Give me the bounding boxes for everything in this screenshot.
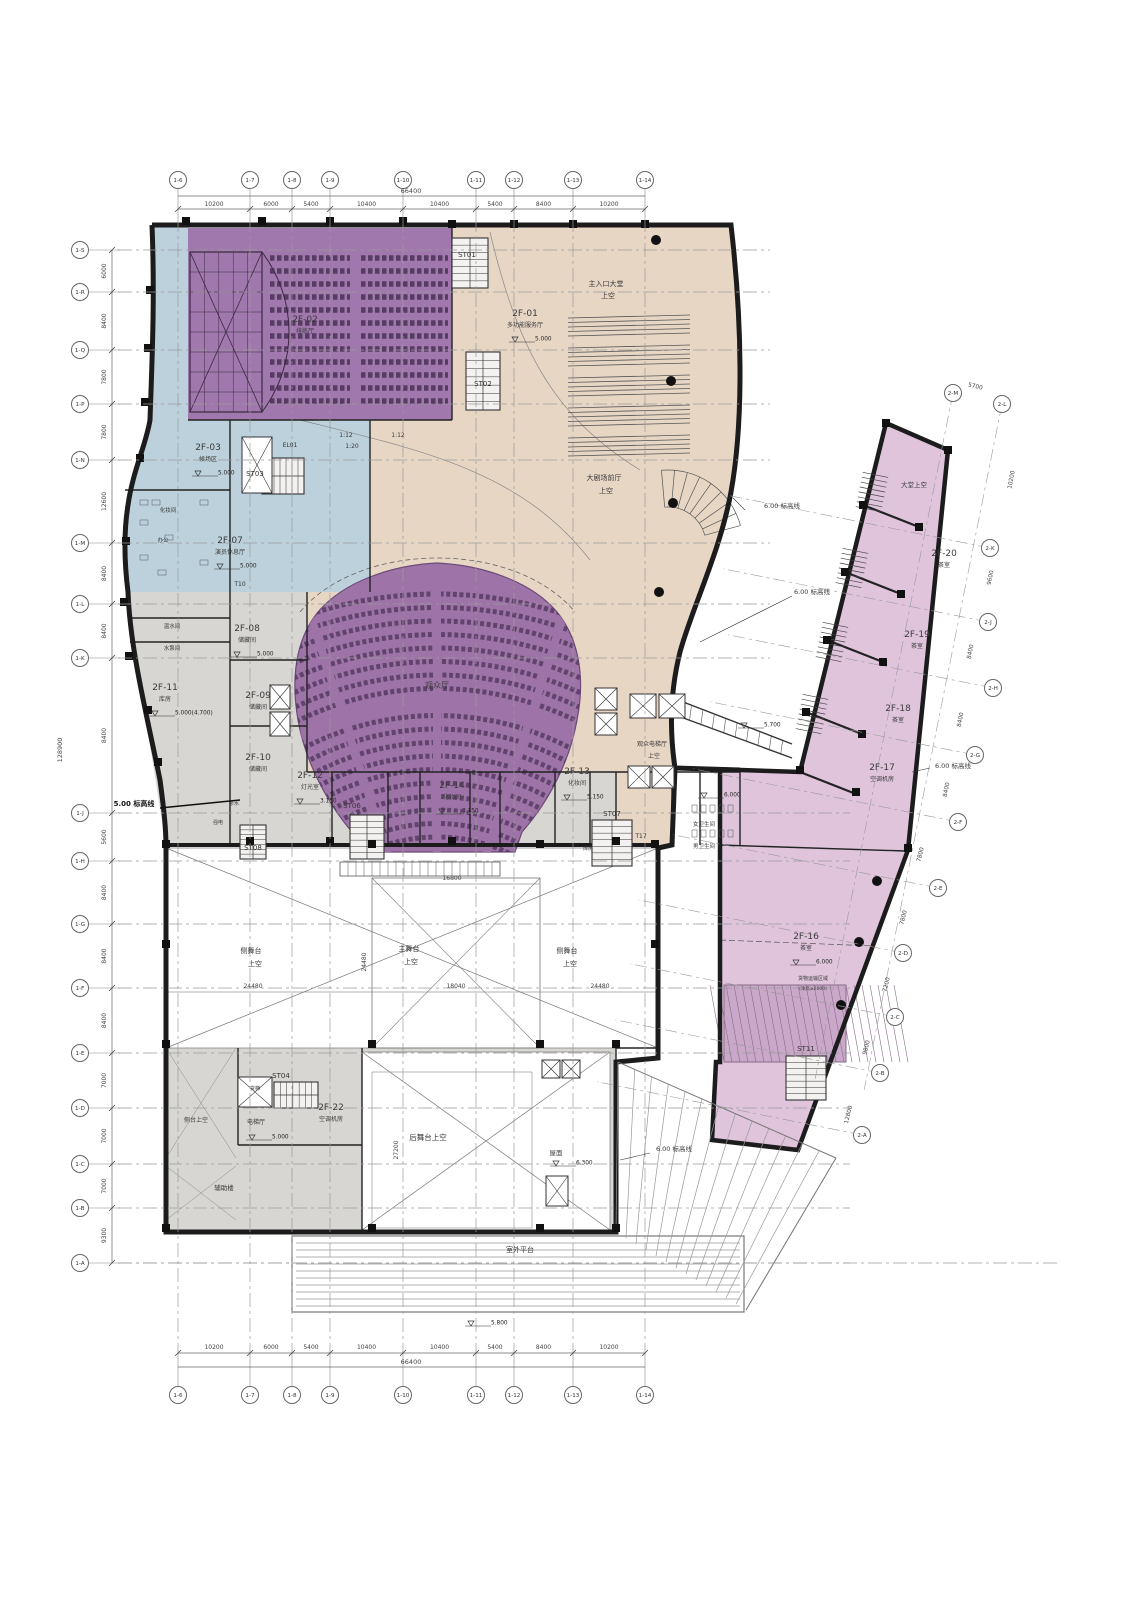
void-dimension: 18040 (446, 983, 465, 990)
grid-bubble-label: 1-8 (287, 1393, 297, 1399)
room-id: 2F-17 (869, 763, 895, 773)
column-marker (368, 1224, 376, 1232)
elevation-value: 5.000 (257, 652, 274, 658)
floor-plan-page: 1-61-71-81-91-101-111-121-131-1466400102… (0, 0, 1130, 1600)
room-name: 空调机房 (319, 1115, 343, 1123)
dim-segment-bottom: 10200 (599, 1344, 618, 1351)
dim-segment-left: 8400 (101, 728, 108, 743)
annotation-hotwater: 温水间 (164, 622, 181, 630)
stair-label: ST02 (474, 380, 492, 388)
dim-segment-top: 10400 (430, 201, 449, 208)
room-name: 储藏间 (249, 703, 267, 711)
annotation-line5: 5.00 标高线 (114, 799, 155, 808)
grid-bubble-label: 2-A (857, 1133, 866, 1139)
grid-bubble-label: 1-E (75, 1051, 85, 1057)
dim-segment-wing: 8400 (967, 644, 976, 660)
dim-segment-wing: 8400 (943, 782, 952, 798)
dim-segment-bottom: 10400 (357, 1344, 376, 1351)
column-marker (144, 344, 152, 352)
dim-segment-left: 8400 (101, 885, 108, 900)
annotation-elev-hall-2: 上空 (648, 752, 660, 760)
grid-bubble-label: 1-8 (287, 178, 297, 184)
annotation-dressing: 化妆间 (160, 506, 177, 514)
bridge-hatch (712, 715, 714, 730)
dim-segment-top: 6000 (263, 201, 278, 208)
reference-dot (836, 1000, 846, 1010)
outdoor-step (726, 1143, 802, 1298)
column-marker (823, 636, 831, 644)
grid-bubble-label: 1-J (76, 811, 84, 817)
dim-segment-left: 8400 (101, 948, 108, 963)
boh-gray-zone (166, 772, 307, 845)
reference-dot (666, 376, 676, 386)
room-name: 空调机房 (870, 775, 894, 783)
dim-segment-left: 8400 (101, 1013, 108, 1028)
elevation-value: 3.150 (462, 809, 479, 815)
elevation-value: 5.150 (587, 795, 604, 801)
outdoor-step (636, 1077, 652, 1244)
annotation-pump: 水泵间 (164, 644, 181, 652)
annotation-cargo2: (净高≥2600) (799, 985, 827, 992)
dim-segment-wing: 9600 (987, 570, 996, 586)
grid-bubble-label: 2-F (954, 820, 963, 826)
grid-bubble-label: 1-12 (508, 178, 521, 184)
grid-bubble-label: 1-9 (325, 1393, 335, 1399)
dim-segment-wing: 9800 (862, 1040, 871, 1056)
grid-bubble-label: 2-L (998, 402, 1008, 408)
toilet-fixture (710, 830, 715, 837)
elevation-value: 6.300 (576, 1161, 593, 1167)
dim-segment-bottom: 5400 (487, 1344, 502, 1351)
annotation-cargo1: 货物运输区域 (798, 975, 828, 982)
elevation-value: 6.000 (816, 960, 833, 966)
grid-bubble-label: 1-H (75, 859, 85, 865)
drawing-line (700, 596, 792, 642)
grid-bubble-label: 1-10 (397, 1393, 410, 1399)
annotation-foyer-2: 上空 (599, 486, 613, 495)
grid-bubble-label: 1-14 (639, 178, 652, 184)
column-marker (258, 217, 266, 225)
annotation-strong-elec: 强电 (213, 819, 223, 826)
void-dimension: 24480 (243, 983, 262, 990)
dim-segment-wing: 7800 (899, 910, 908, 926)
toilet-fixture (701, 830, 706, 837)
column-marker (122, 537, 130, 545)
grid-bubble-label: 1-G (75, 922, 85, 928)
dim-segment-left: 7000 (101, 1073, 108, 1088)
elevation-value: 5.700 (764, 723, 781, 729)
grid-bubble-label: 1-A (75, 1261, 84, 1267)
dim-segment-left: 7800 (101, 424, 108, 439)
grid-bubble-label: 2-D (898, 951, 908, 957)
column-marker (536, 1224, 544, 1232)
annotation-line6b: 6.00 标高线 (794, 587, 831, 596)
floor-plan-drawing: 1-61-71-81-91-101-111-121-131-1466400102… (0, 0, 1130, 1600)
annotation-elev-lobby: 电梯厅 (247, 1118, 265, 1126)
annotation-slope2: 1:12 (391, 432, 405, 439)
column-marker (162, 1040, 170, 1048)
dim-segment-left: 8400 (101, 313, 108, 328)
void-dimension: 16800 (442, 875, 461, 882)
column-marker (120, 598, 128, 606)
annotation-rear-void: 后舞台上空 (409, 1132, 447, 1142)
hatch-line (870, 985, 884, 1062)
annotation-office: 办公 (157, 536, 169, 544)
annotation-slope3: 1:20 (345, 443, 359, 450)
dim-segment-wing: 8400 (957, 712, 966, 728)
column-marker (154, 758, 162, 766)
column-marker (448, 837, 456, 845)
room-name: 储藏间 (238, 636, 256, 644)
grid-bubble-label: 1-K (75, 656, 85, 662)
dim-segment-top: 5400 (303, 201, 318, 208)
column-marker (879, 658, 887, 666)
annotation-line6c: 6.00 标高线 (935, 761, 972, 770)
dim-segment-left: 7800 (101, 369, 108, 384)
elevation-value: 5.000 (218, 471, 235, 477)
column-marker (612, 837, 620, 845)
column-marker (162, 840, 170, 848)
column-marker (904, 844, 912, 852)
annotation-main-entry-1: 主入口大堂 (589, 279, 624, 288)
room-id: 2F-19 (904, 630, 930, 640)
stair-label: ST06 (343, 802, 361, 810)
grid-bubble-label: 1-F (76, 986, 85, 992)
bridge-hatch (701, 711, 703, 726)
room-id: 2F-01 (512, 309, 538, 319)
room-name: 茶室 (892, 716, 904, 724)
dim-segment-top: 10200 (204, 201, 223, 208)
toilet-core-label: T10 (233, 581, 245, 588)
room-id: 2F-11 (152, 683, 178, 693)
elevation-triangle (468, 1321, 474, 1326)
grid-bubble-label: 1-M (75, 541, 86, 547)
stair-label: ST07 (603, 810, 621, 818)
room-id: 2F-18 (885, 704, 911, 714)
grid-bubble-label: 1-12 (508, 1393, 521, 1399)
outdoor-step (626, 1069, 635, 1238)
dim-segment-wing: 10200 (1007, 470, 1016, 490)
stair-label: ST01 (458, 251, 476, 259)
grid-bubble-label: 1-13 (567, 1393, 580, 1399)
elevation-value: 5.000 (272, 1135, 289, 1141)
column-marker (536, 1040, 544, 1048)
room-id: 2F-10 (245, 753, 271, 763)
grid-bubble-label: 2-B (875, 1071, 884, 1077)
room-id: 2F-02 (292, 315, 318, 325)
stair-label: ST08 (244, 844, 262, 852)
dim-segment-left: 7000 (101, 1128, 108, 1143)
grid-bubble-label: 1-R (75, 290, 85, 296)
room-name: 演员休息厅 (215, 548, 245, 556)
column-marker (162, 1224, 170, 1232)
dim-segment-left: 6000 (101, 263, 108, 278)
outdoor-step (656, 1092, 685, 1256)
dim-total-left: 128900 (56, 738, 64, 763)
toilet-fixture (692, 805, 697, 812)
dim-segment-wing: 7200 (882, 977, 891, 993)
column-marker (612, 1040, 620, 1048)
grid-bubble-label: 1-S (75, 248, 85, 254)
drawing-line (733, 498, 745, 510)
elevation-value: 5.000 (240, 564, 257, 570)
annotation-roof: 屋面 (550, 1149, 564, 1157)
annotation-side-void: 侧台上空 (184, 1116, 208, 1124)
dim-total-bottom: 66400 (401, 1358, 422, 1366)
column-marker (841, 568, 849, 576)
dim-segment-top: 5400 (487, 201, 502, 208)
column-marker (859, 501, 867, 509)
room-name: 灯光室 (301, 783, 319, 791)
dim-segment-top: 10200 (599, 201, 618, 208)
grid-bubble-label: 2-E (933, 886, 943, 892)
dim-segment-left: 8400 (101, 566, 108, 581)
dim-segment-left: 12600 (101, 492, 108, 511)
room-id: 2F-12 (297, 771, 323, 781)
column-marker (368, 1040, 376, 1048)
grid-bubble-label: 1-7 (245, 178, 255, 184)
dim-segment-left: 7000 (101, 1178, 108, 1193)
wing-hatch-area (724, 985, 846, 1062)
room-name: 库房 (159, 695, 171, 703)
room-name: 茶室 (800, 944, 812, 952)
dim-segment-bottom: 10400 (430, 1344, 449, 1351)
grid-bubble-label: 1-14 (639, 1393, 652, 1399)
grid-bubble-label: 1-C (75, 1162, 85, 1168)
dim-segment-left: 5600 (101, 829, 108, 844)
annotation-line6d: 6.00 标高线 (656, 1144, 693, 1153)
column-marker (915, 523, 923, 531)
annotation-stage-r2: 上空 (563, 959, 577, 968)
grid-bubble-label: 2-H (988, 686, 998, 692)
bridge-hatch (746, 728, 748, 742)
column-marker (852, 788, 860, 796)
dim-total-top: 66400 (401, 187, 422, 195)
room-id: 2F-16 (793, 932, 819, 942)
dim-segment-bottom: 6000 (263, 1344, 278, 1351)
reference-dot (654, 587, 664, 597)
dim-segment-left: 9300 (101, 1228, 108, 1243)
grid-bubble-label: 1-13 (567, 178, 580, 184)
column-marker (182, 217, 190, 225)
annotation-stage-l1: 侧舞台 (241, 946, 262, 955)
annotation-terrace: 室外平台 (506, 1245, 534, 1254)
room-id: 2F-13 (564, 767, 590, 777)
grid-bubble-label: 1-11 (470, 178, 483, 184)
elevation-value: 5.000(4.700) (175, 711, 213, 717)
column-marker (882, 419, 890, 427)
grid-bubble-label: 2-G (970, 753, 980, 759)
grid-bubble-label: 1-D (75, 1106, 85, 1112)
grid-bubble-label: 1-7 (245, 1393, 255, 1399)
reference-dot (854, 937, 864, 947)
dim-segment-bottom: 8400 (536, 1344, 551, 1351)
column-marker (612, 1224, 620, 1232)
column-marker (858, 730, 866, 738)
outdoor-step (736, 1151, 819, 1304)
grid-bubble-label: 1-6 (173, 1393, 183, 1399)
reference-dot (668, 498, 678, 508)
column-marker (651, 840, 659, 848)
room-id: 2F-14 (439, 781, 465, 791)
toilet-fixture (701, 805, 706, 812)
room-id: 2F-03 (195, 443, 221, 453)
reference-dot (872, 876, 882, 886)
dim-segment-bottom: 10200 (204, 1344, 223, 1351)
grid-bubble-label: 2-M (948, 391, 959, 397)
room-name: 候场区 (199, 455, 217, 463)
stair-label: ST04 (272, 1072, 290, 1080)
toilet-fixture (692, 830, 697, 837)
grid-bubble-label: 2-J (984, 620, 992, 626)
room-id: 2F-09 (245, 691, 271, 701)
annotation-line6a: 6.00 标高线 (764, 501, 801, 510)
dim-segment-top: 8400 (536, 201, 551, 208)
annotation-stage-r1: 侧舞台 (557, 946, 578, 955)
room-name: 多功能服务厅 (507, 321, 543, 329)
column-marker (897, 590, 905, 598)
column-marker (368, 840, 376, 848)
room-name: 茶室 (911, 642, 923, 650)
room-name: 化妆间 (443, 793, 461, 801)
grid-bubble-label: 2-K (985, 546, 995, 552)
annotation-wing-void: 大堂上空 (901, 480, 928, 489)
void-dimension: 27200 (393, 1140, 400, 1159)
outdoor-step (646, 1084, 668, 1250)
dim-segment-left: 8400 (101, 623, 108, 638)
annotation-slope1: 1:12 (339, 432, 353, 439)
room-id: 2F-08 (234, 624, 260, 634)
outdoor-step (716, 1136, 786, 1292)
annotation-foyer-1: 大剧场前厅 (587, 473, 622, 482)
annotation-freight: 货梯 (250, 1085, 260, 1092)
grid-bubble-label: 1-Q (75, 348, 86, 354)
bridge-hatch (758, 732, 760, 746)
room-name: 排练厅 (296, 327, 314, 335)
grid-bubble-label: 2-C (890, 1015, 900, 1021)
room-name: 化妆间 (568, 779, 586, 787)
elevation-value: 3.150 (320, 799, 337, 805)
void-dimension: 24480 (361, 952, 368, 971)
elevation-value: 5.000 (535, 337, 552, 343)
annotation-store: 库房 (583, 845, 593, 852)
column-marker (144, 706, 152, 714)
dim-segment-bottom: 5400 (303, 1344, 318, 1351)
column-marker (125, 652, 133, 660)
elevation-triangle (701, 793, 707, 798)
drawing-line (620, 1153, 650, 1160)
elevation-value: 5.800 (491, 1321, 508, 1327)
stair-label: ST03 (246, 470, 264, 478)
grid-bubble-label: 1-11 (470, 1393, 483, 1399)
annotation-main-entry-2: 上空 (601, 291, 615, 300)
column-marker (651, 940, 659, 948)
room-name: 储藏间 (249, 765, 267, 773)
elevation-value: 6.000 (724, 793, 741, 799)
annotation-wc-f: 女卫生间 (693, 820, 715, 828)
room-id: 2F-07 (217, 536, 243, 546)
annotation-elev-hall-1: 观众电梯厅 (637, 740, 667, 748)
dim-segment-wing: 7800 (916, 847, 925, 863)
grid-bubble-label: 1-P (76, 402, 86, 408)
room-id: 2F-22 (318, 1103, 344, 1113)
annotation-stage-m2: 上空 (404, 957, 418, 966)
bridge-hatch (769, 736, 771, 750)
column-marker (146, 286, 154, 294)
room-id: 2F-20 (931, 549, 957, 559)
column-marker (536, 840, 544, 848)
grid-bubble-label: 1-L (76, 602, 86, 608)
toilet-fixture (710, 805, 715, 812)
column-marker (802, 708, 810, 716)
bridge-hatch (735, 724, 737, 739)
grid-bubble-label: 1-9 (325, 178, 335, 184)
grid-bubble-label: 1-10 (397, 178, 410, 184)
column-marker (141, 398, 149, 406)
grid-bubble-label: 1-6 (173, 178, 183, 184)
column-marker (162, 940, 170, 948)
elevator-label: EL01 (283, 442, 298, 449)
column-marker (448, 220, 456, 228)
annotation-aux: 辅助楼 (214, 1183, 234, 1192)
toilet-core-label: T17 (634, 833, 646, 840)
reference-dot (651, 235, 661, 245)
column-marker (796, 766, 804, 774)
bridge-hatch (724, 719, 726, 734)
drawing-line (746, 1158, 836, 1310)
bridge-hatch (781, 741, 783, 755)
annotation-wc-m: 男卫生间 (693, 842, 715, 850)
void-dimension: 24480 (590, 983, 609, 990)
grid-bubble-label: 1-N (75, 458, 85, 464)
dim-segment-top: 10400 (357, 201, 376, 208)
bridge-hatch (689, 706, 691, 721)
annotation-stage-m1: 主舞台 (399, 944, 420, 953)
dim-segment-wing: 5700 (967, 382, 983, 391)
column-marker (944, 446, 952, 454)
column-marker (136, 454, 144, 462)
annotation-audience-hall: 观众厅 (425, 681, 449, 690)
room-name: 茶室 (938, 561, 950, 569)
annotation-stage-l2: 上空 (248, 959, 262, 968)
grid-bubble-label: 1-B (75, 1206, 84, 1212)
stair-label: ST11 (797, 1045, 815, 1053)
